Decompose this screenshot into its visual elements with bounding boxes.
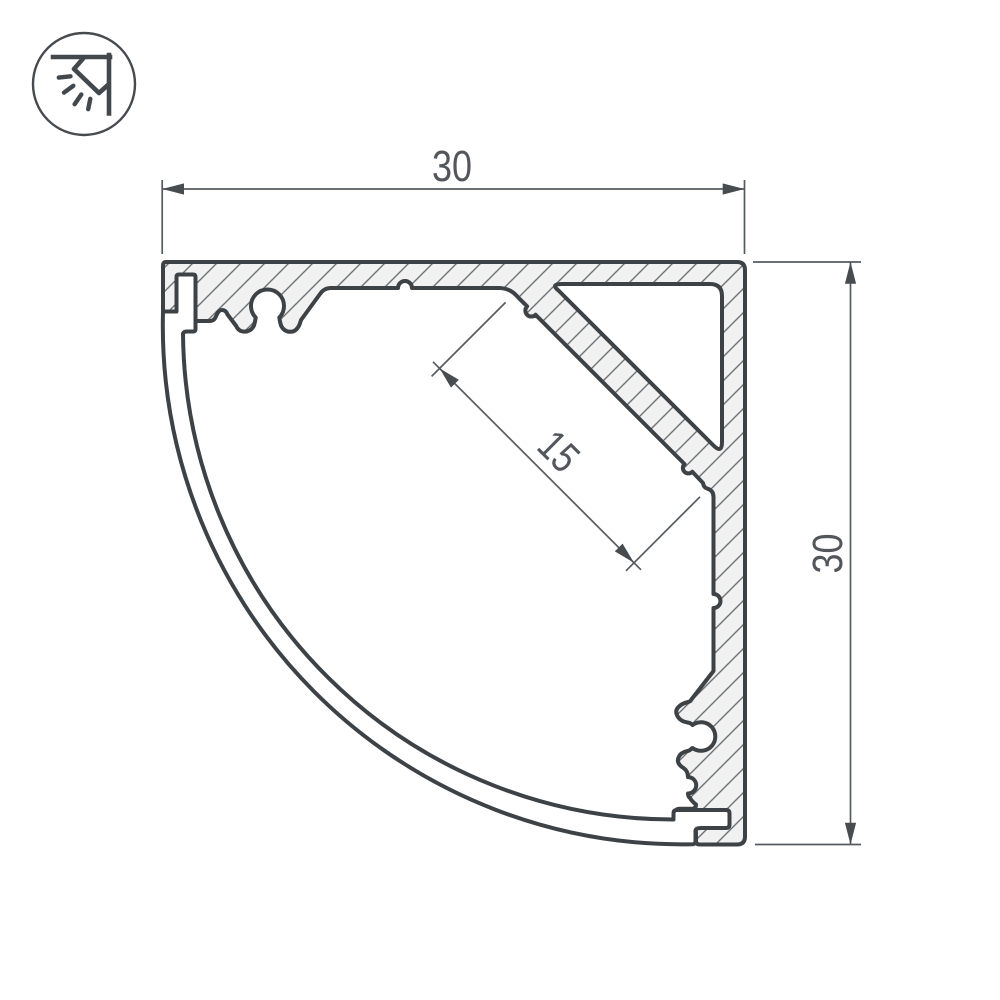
svg-text:30: 30 xyxy=(805,534,852,574)
svg-text:30: 30 xyxy=(432,142,472,191)
